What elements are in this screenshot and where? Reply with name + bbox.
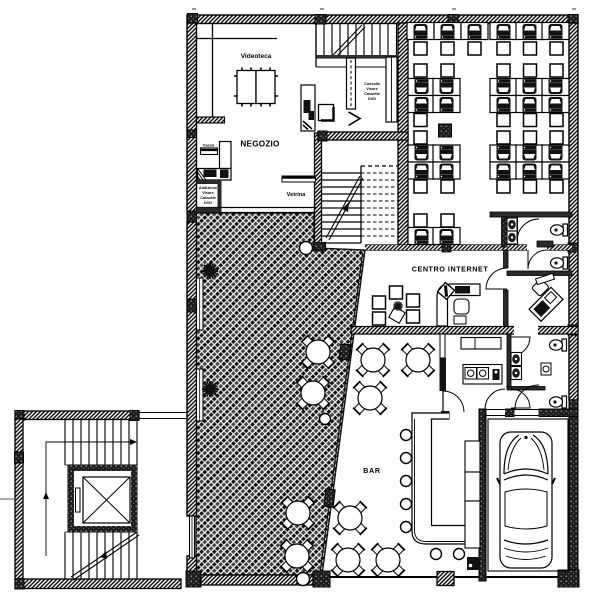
svg-text:Consolle: Consolle [364, 82, 380, 86]
svg-text:CENTRO INTERNET: CENTRO INTERNET [412, 265, 489, 274]
svg-text:DVD: DVD [368, 97, 376, 101]
svg-text:Vetrina: Vetrina [287, 192, 307, 198]
svg-text:Videoteca: Videoteca [241, 53, 272, 60]
svg-text:NEGOZIO: NEGOZIO [240, 140, 280, 149]
svg-text:Visore: Visore [202, 191, 214, 195]
svg-text:Addizione: Addizione [199, 186, 217, 190]
svg-text:Cassette: Cassette [200, 196, 216, 200]
svg-text:BAR: BAR [363, 466, 381, 475]
svg-text:DVD: DVD [204, 201, 212, 205]
svg-text:Cassette: Cassette [364, 92, 380, 96]
svg-text:Visore: Visore [366, 87, 378, 91]
svg-text:Cassa: Cassa [203, 143, 216, 148]
